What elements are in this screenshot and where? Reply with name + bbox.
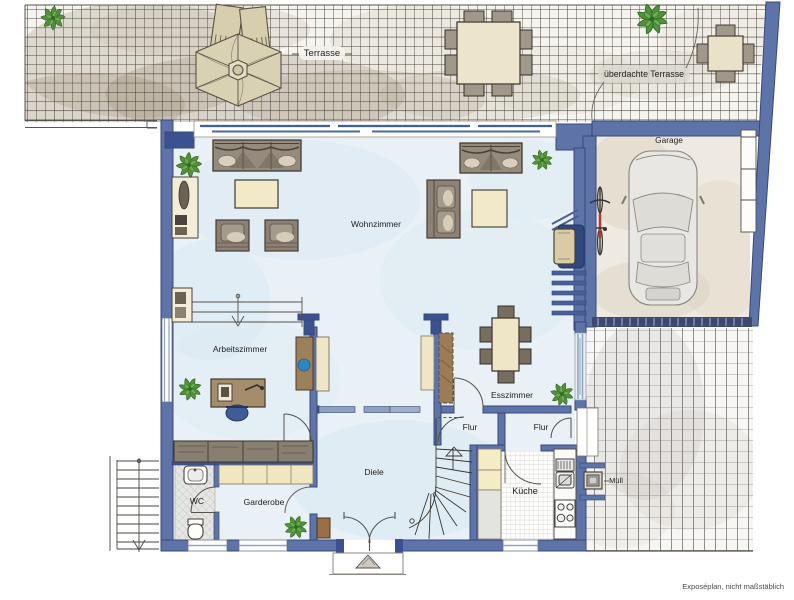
svg-text:Flur: Flur xyxy=(463,422,478,432)
svg-text:Diele: Diele xyxy=(364,467,384,477)
svg-text:Wohnzimmer: Wohnzimmer xyxy=(351,219,401,229)
svg-text:Arbeitszimmer: Arbeitszimmer xyxy=(213,344,267,354)
svg-text:Garderobe: Garderobe xyxy=(244,497,285,507)
svg-text:Küche: Küche xyxy=(512,486,538,496)
svg-text:Exposéplan, nicht maßstäblich: Exposéplan, nicht maßstäblich xyxy=(682,582,784,591)
svg-text:Garage: Garage xyxy=(655,135,683,145)
svg-text:Esszimmer: Esszimmer xyxy=(491,390,533,400)
svg-text:Flur: Flur xyxy=(534,422,549,432)
svg-text:WC: WC xyxy=(190,496,204,506)
svg-text:Müll: Müll xyxy=(609,476,623,485)
svg-text:Terrasse: Terrasse xyxy=(304,48,340,59)
svg-text:überdachte Terrasse: überdachte Terrasse xyxy=(604,69,684,79)
